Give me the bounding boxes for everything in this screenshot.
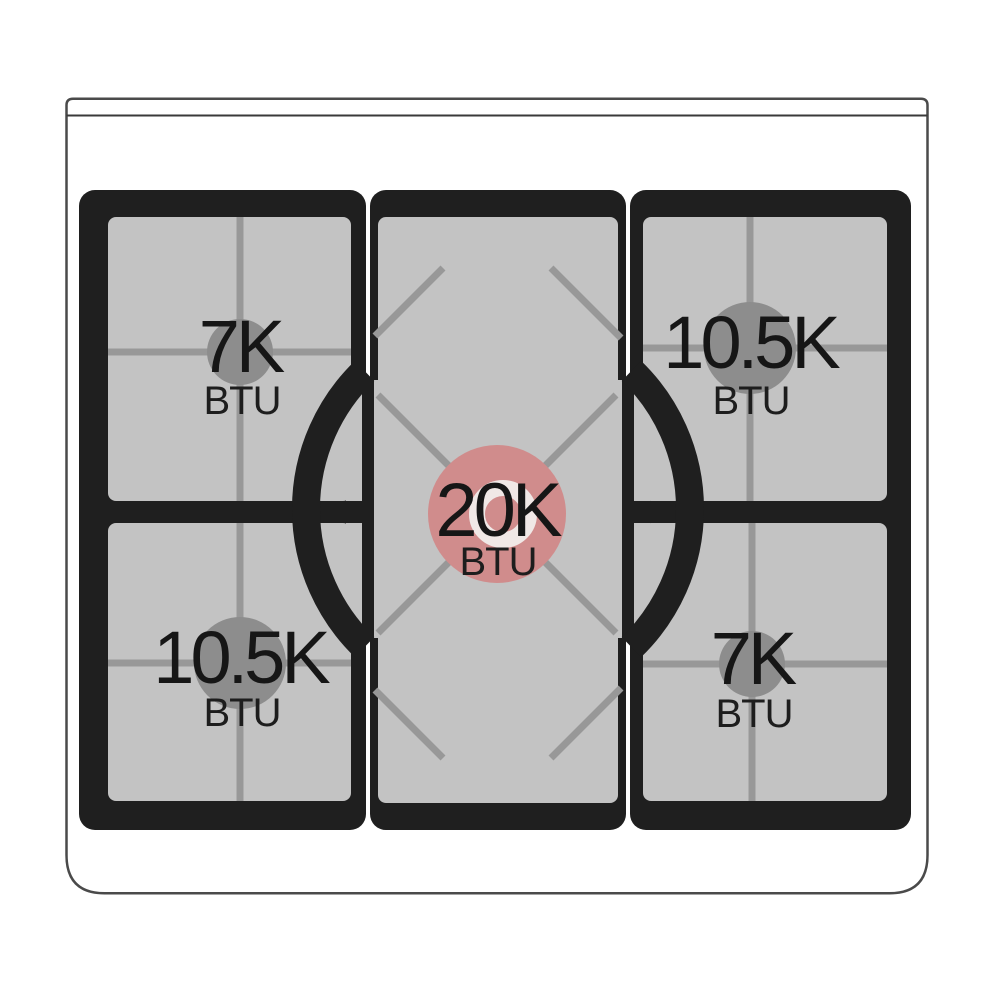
burner-unit-bottom-left: BTU: [204, 691, 281, 735]
burner-unit-bottom-right: BTU: [716, 692, 793, 736]
burner-unit-center: BTU: [460, 540, 537, 584]
range-cooktop-diagram: 7K BTU 10.5K BTU 20K BTU 10.5K BTU 7K BT…: [0, 0, 1000, 1000]
burner-rating-bottom-left: 10.5K: [153, 616, 330, 699]
burner-rating-top-right: 10.5K: [663, 301, 840, 384]
burner-rating-top-left: 7K: [199, 305, 285, 388]
cooktop-diagram-canvas: 7K BTU 10.5K BTU 20K BTU 10.5K BTU 7K BT…: [0, 0, 1000, 1000]
divider-bar-left: [79, 501, 366, 523]
burner-rating-bottom-right: 7K: [711, 617, 797, 700]
divider-bar-right: [630, 501, 911, 523]
burner-unit-top-left: BTU: [204, 379, 281, 423]
burner-unit-top-right: BTU: [713, 379, 790, 423]
